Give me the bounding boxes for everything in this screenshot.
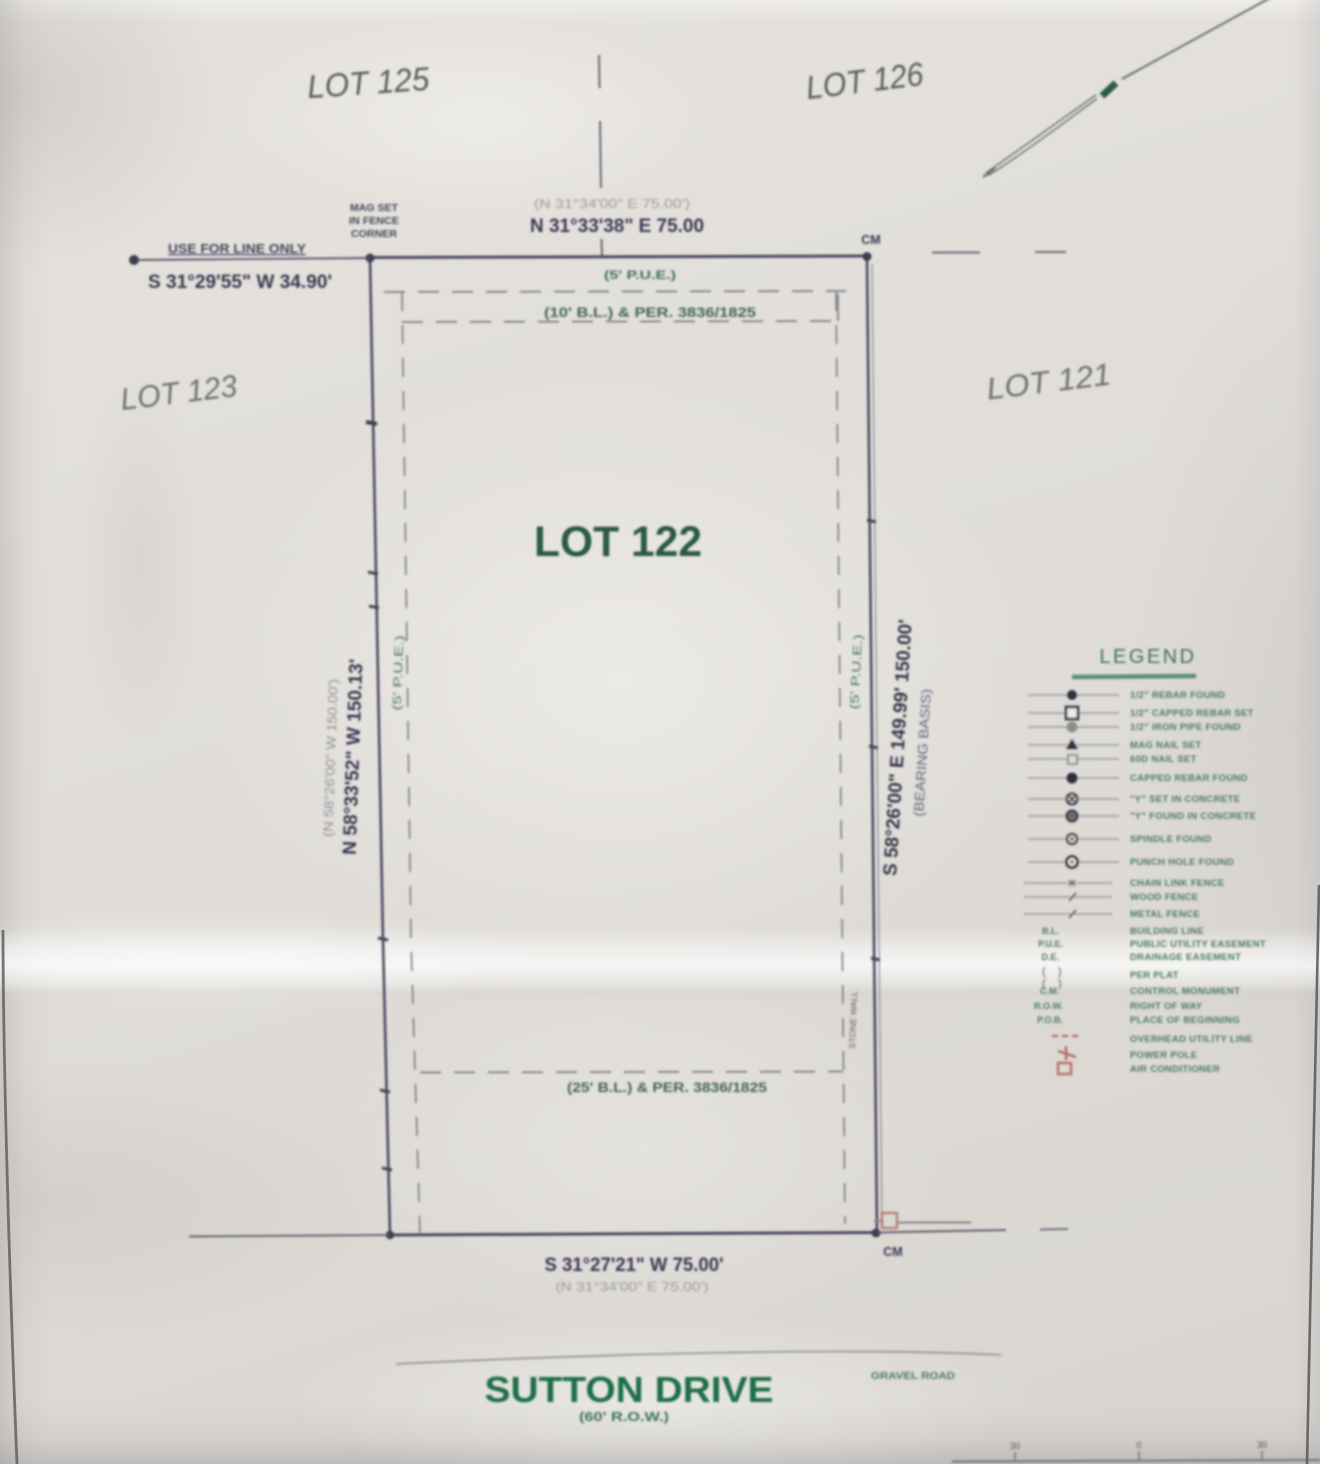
svg-text:B.L.: B.L. (1042, 926, 1059, 936)
svg-text:R.O.W.: R.O.W. (1034, 1001, 1063, 1011)
svg-text:SPINDLE FOUND: SPINDLE FOUND (1130, 834, 1212, 845)
svg-text:LOT 126: LOT 126 (804, 55, 926, 106)
svg-text:1/2" IRON PIPE FOUND: 1/2" IRON PIPE FOUND (1130, 722, 1241, 733)
svg-text:CORNER: CORNER (351, 229, 398, 240)
svg-text:LOT 123: LOT 123 (119, 368, 239, 417)
svg-text:(5' P.U.E.): (5' P.U.E.) (847, 634, 865, 710)
svg-text:(60' R.O.W.): (60' R.O.W.) (579, 1409, 669, 1424)
svg-text:(25' B.L.) & PER. 3836/1825: (25' B.L.) & PER. 3836/1825 (567, 1080, 768, 1095)
svg-text:PER PLAT: PER PLAT (1130, 970, 1179, 981)
svg-text:METAL FENCE: METAL FENCE (1130, 909, 1200, 920)
svg-text:IN FENCE: IN FENCE (349, 216, 399, 227)
svg-text:OVERHEAD UTILITY LINE: OVERHEAD UTILITY LINE (1130, 1034, 1253, 1045)
svg-text:S 31°27'21" W 75.00': S 31°27'21" W 75.00' (545, 1255, 724, 1276)
svg-text:S 58°26'00" E 149.99' 150.00': S 58°26'00" E 149.99' 150.00' (880, 619, 917, 877)
svg-text:PLACE OF BEGINNING: PLACE OF BEGINNING (1130, 1015, 1240, 1026)
svg-text:1/2" CAPPED REBAR SET: 1/2" CAPPED REBAR SET (1130, 708, 1254, 719)
svg-text:SUTTON DRIVE: SUTTON DRIVE (485, 1369, 774, 1410)
svg-text:DRAINAGE EASEMENT: DRAINAGE EASEMENT (1130, 952, 1241, 963)
svg-text:P.U.E.: P.U.E. (1038, 939, 1063, 949)
svg-text:S 31°29'55" W 34.90': S 31°29'55" W 34.90' (148, 272, 332, 293)
svg-text:RIGHT OF WAY: RIGHT OF WAY (1130, 1001, 1203, 1012)
svg-text:60D NAIL SET: 60D NAIL SET (1130, 754, 1197, 765)
svg-text:LEGEND: LEGEND (1099, 646, 1196, 668)
svg-text:(N 31°34'00" E 75.00'): (N 31°34'00" E 75.00') (534, 196, 690, 211)
svg-text:P.O.B.: P.O.B. (1037, 1015, 1063, 1025)
svg-text:CM: CM (861, 233, 880, 247)
svg-text:PUBLIC UTILITY EASEMENT: PUBLIC UTILITY EASEMENT (1130, 939, 1266, 950)
svg-text:30: 30 (1257, 1440, 1267, 1450)
svg-text:MAG SET: MAG SET (350, 203, 398, 214)
svg-text:CHAIN LINK FENCE: CHAIN LINK FENCE (1130, 878, 1225, 889)
svg-text:1/2" REBAR FOUND: 1/2" REBAR FOUND (1130, 690, 1225, 701)
svg-text:0: 0 (1136, 1440, 1141, 1450)
svg-text:N 31°33'38" E 75.00: N 31°33'38" E 75.00 (530, 216, 704, 237)
svg-text:GRAVEL ROAD: GRAVEL ROAD (871, 1371, 955, 1382)
svg-text:PUNCH HOLE FOUND: PUNCH HOLE FOUND (1130, 857, 1234, 868)
svg-text:N 58°33'52" W 150.13': N 58°33'52" W 150.13' (340, 659, 368, 856)
svg-text:(: ( (1042, 978, 1046, 990)
svg-text:): ) (1058, 978, 1062, 990)
svg-text:MAG NAIL SET: MAG NAIL SET (1130, 740, 1202, 751)
svg-text:(N 58°26'00" W 150.00'): (N 58°26'00" W 150.00') (320, 679, 341, 837)
svg-text:CONTROL MONUMENT: CONTROL MONUMENT (1130, 986, 1240, 997)
svg-text:POWER POLE: POWER POLE (1130, 1050, 1197, 1061)
svg-text:CM: CM (883, 1245, 902, 1259)
svg-text:"Y" FOUND IN CONCRETE: "Y" FOUND IN CONCRETE (1130, 811, 1256, 822)
svg-text:STONE WALL: STONE WALL (847, 990, 859, 1049)
svg-text:(5' P.U.E.): (5' P.U.E.) (390, 635, 407, 710)
svg-text:(BEARING BASIS): (BEARING BASIS) (911, 688, 934, 817)
svg-text:LOT 125: LOT 125 (306, 60, 431, 105)
svg-text:(: ( (1042, 966, 1046, 978)
svg-text:"Y" SET IN CONCRETE: "Y" SET IN CONCRETE (1130, 794, 1240, 805)
svg-text:LOT 122: LOT 122 (534, 518, 702, 566)
svg-text:(N 31°34'00" E 75.00'): (N 31°34'00" E 75.00') (556, 1280, 709, 1294)
svg-text:USE FOR LINE ONLY: USE FOR LINE ONLY (168, 242, 307, 256)
svg-text:30: 30 (1010, 1441, 1020, 1451)
svg-text:WOOD FENCE: WOOD FENCE (1130, 892, 1198, 903)
svg-text:AIR CONDITIONER: AIR CONDITIONER (1130, 1064, 1220, 1075)
svg-text:LOT 121: LOT 121 (985, 357, 1113, 407)
svg-text:CAPPED REBAR FOUND: CAPPED REBAR FOUND (1130, 773, 1248, 784)
svg-text:D.E.: D.E. (1041, 952, 1059, 962)
svg-text:BUILDING LINE: BUILDING LINE (1130, 926, 1204, 937)
svg-text:(5' P.U.E.): (5' P.U.E.) (604, 268, 676, 282)
svg-text:(10' B.L.) & PER. 3836/1825: (10' B.L.) & PER. 3836/1825 (544, 305, 757, 320)
svg-text:): ) (1058, 966, 1062, 978)
